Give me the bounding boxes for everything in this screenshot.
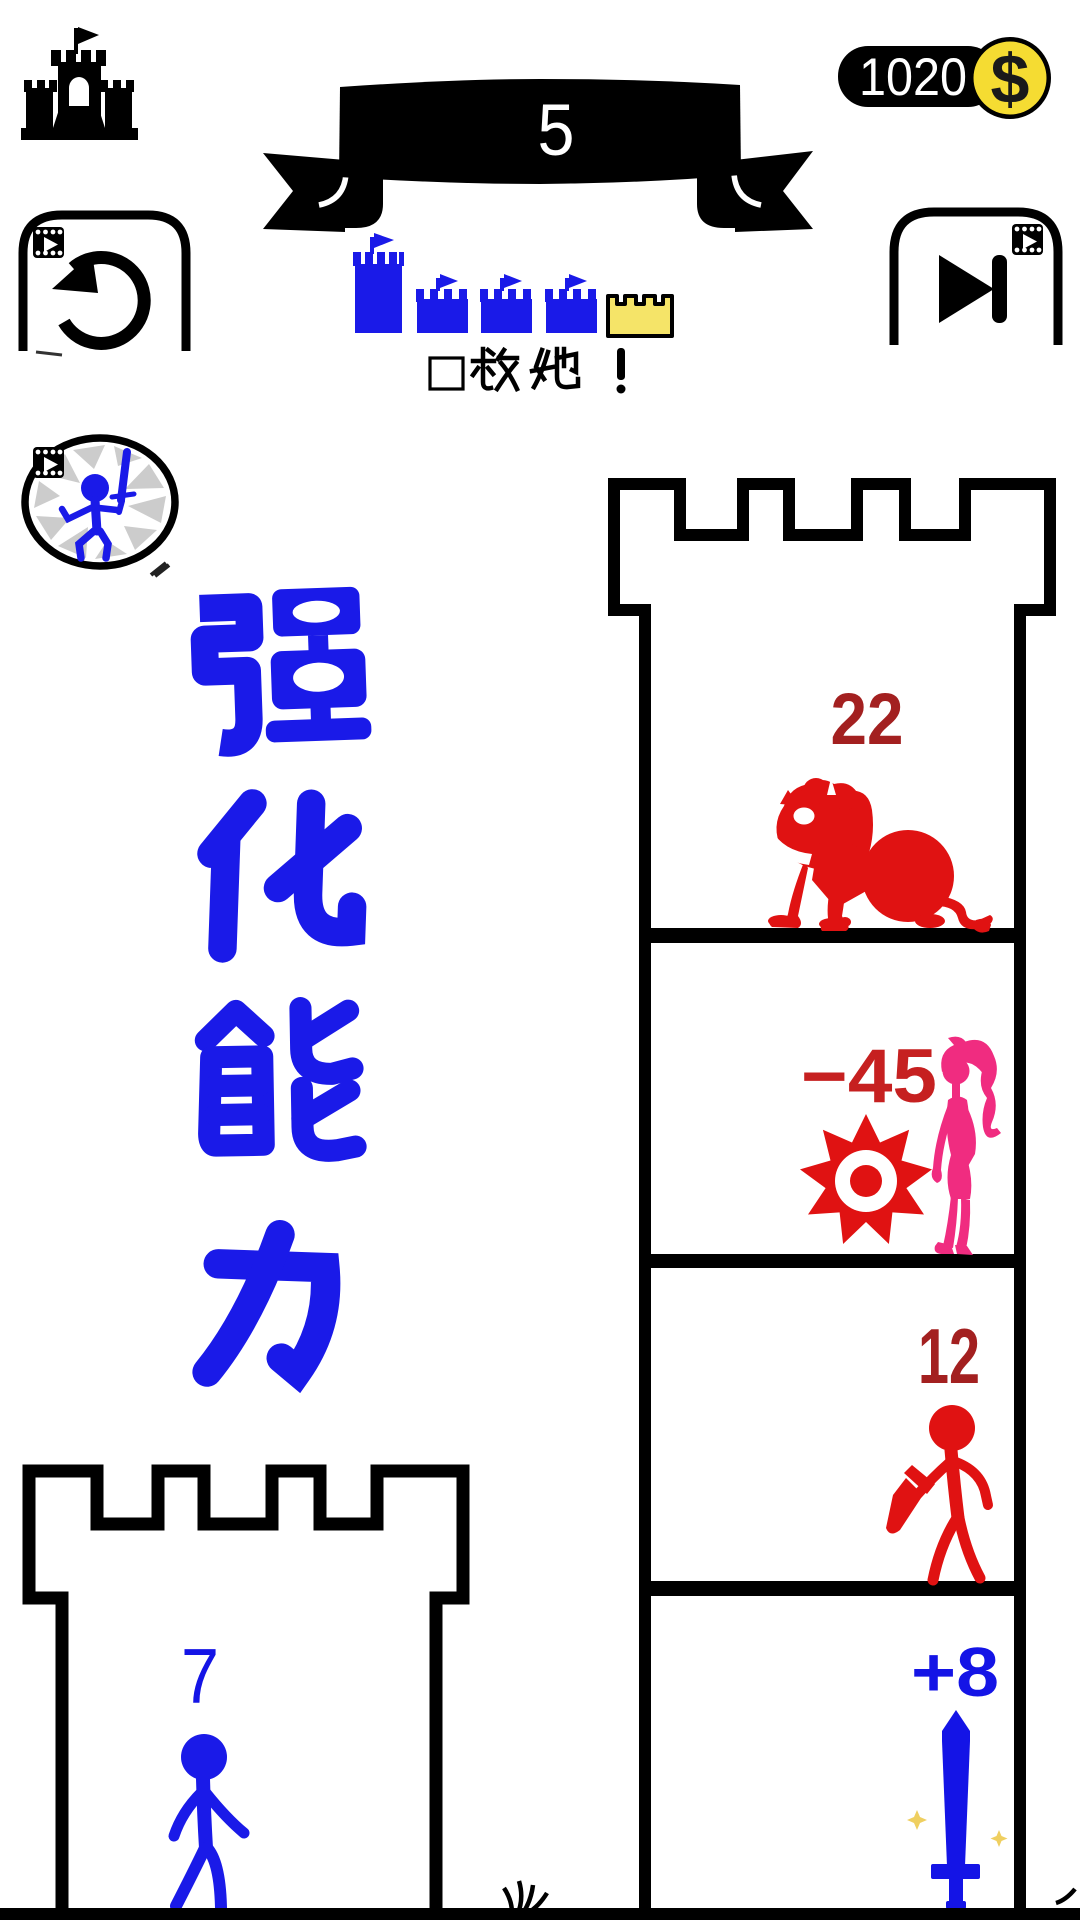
svg-text:+8: +8 [911, 1633, 999, 1711]
svg-text:5: 5 [538, 90, 575, 171]
svg-text:12: 12 [918, 1312, 980, 1400]
svg-text:22: 22 [831, 679, 904, 760]
svg-text:7: 7 [181, 1632, 219, 1720]
svg-text:$: $ [991, 40, 1030, 118]
svg-text:−45: −45 [801, 1034, 937, 1119]
svg-text:1020: 1020 [859, 48, 967, 107]
